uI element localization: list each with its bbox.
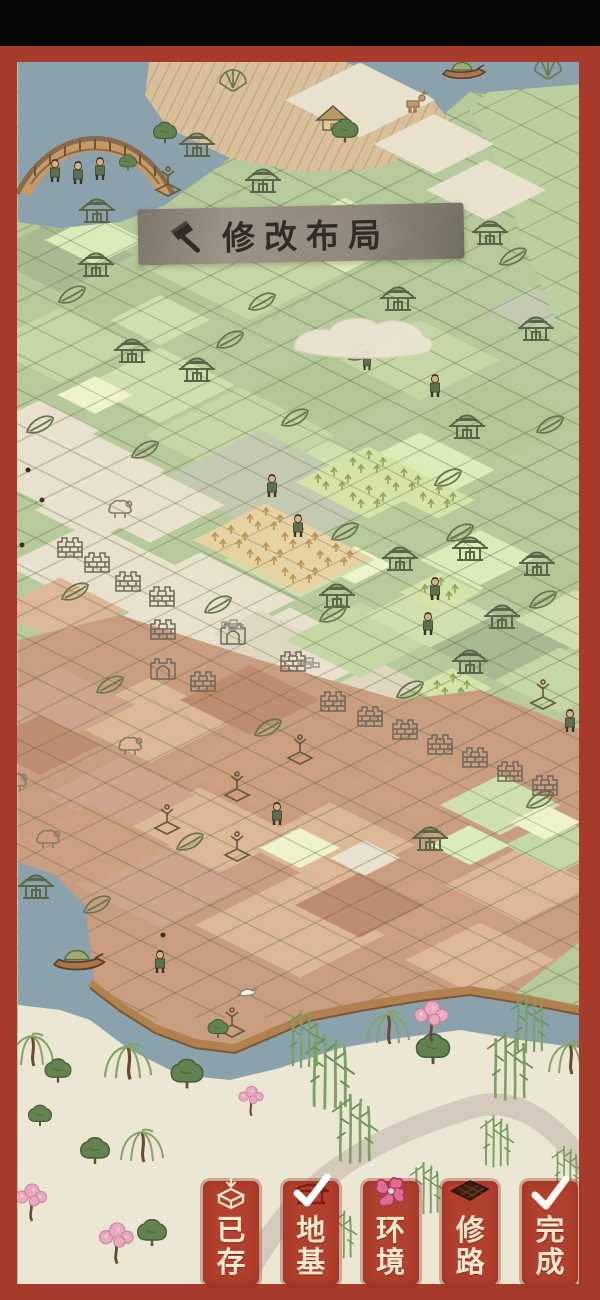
toolbar-button-environment[interactable]: 环境: [363, 1181, 419, 1285]
building-check-icon: [287, 1169, 335, 1217]
toolbar-button-foundation[interactable]: 地基: [283, 1181, 339, 1285]
frame-border-top: [0, 46, 600, 62]
save-box-icon: [207, 1169, 255, 1217]
toolbar-button-label: 已存: [216, 1215, 245, 1280]
edit-layout-banner: 修改布局: [137, 203, 464, 266]
toolbar-button-label: 完成: [535, 1215, 564, 1280]
label-char: 已: [216, 1215, 245, 1247]
frame-border-bottom: [0, 1284, 600, 1300]
label-char: 基: [296, 1247, 325, 1279]
label-char: 环: [376, 1215, 405, 1247]
flower-icon: [367, 1169, 415, 1217]
label-char: 路: [456, 1247, 485, 1279]
toolbar-button-saved[interactable]: 已存: [203, 1181, 259, 1285]
toolbar-button-label: 环境: [376, 1215, 405, 1280]
label-char: 地: [296, 1215, 325, 1247]
road-tile-icon: [446, 1169, 494, 1217]
banner-label: 修改布局: [222, 208, 391, 260]
frame-border-left: [0, 46, 17, 1300]
label-char: 境: [376, 1247, 405, 1279]
label-char: 存: [216, 1247, 245, 1279]
check-icon: [526, 1169, 574, 1217]
hammer-icon: [164, 214, 209, 259]
status-bar-area: [0, 0, 600, 46]
toolbar-button-label: 地基: [296, 1215, 325, 1280]
toolbar-button-finish[interactable]: 完成: [522, 1181, 578, 1285]
toolbar-button-road[interactable]: 修路: [442, 1181, 498, 1285]
label-char: 修: [456, 1215, 485, 1247]
map-viewport[interactable]: 修改布局: [0, 0, 600, 1300]
frame-border-right: [579, 46, 600, 1300]
bottom-toolbar: 已存地基环境修路完成: [203, 1181, 578, 1285]
label-char: 完: [535, 1215, 564, 1247]
game-screen: { "banner": { "label": "修改布局", "icon": "…: [0, 0, 600, 1300]
label-char: 成: [535, 1247, 564, 1279]
toolbar-button-label: 修路: [456, 1215, 485, 1280]
